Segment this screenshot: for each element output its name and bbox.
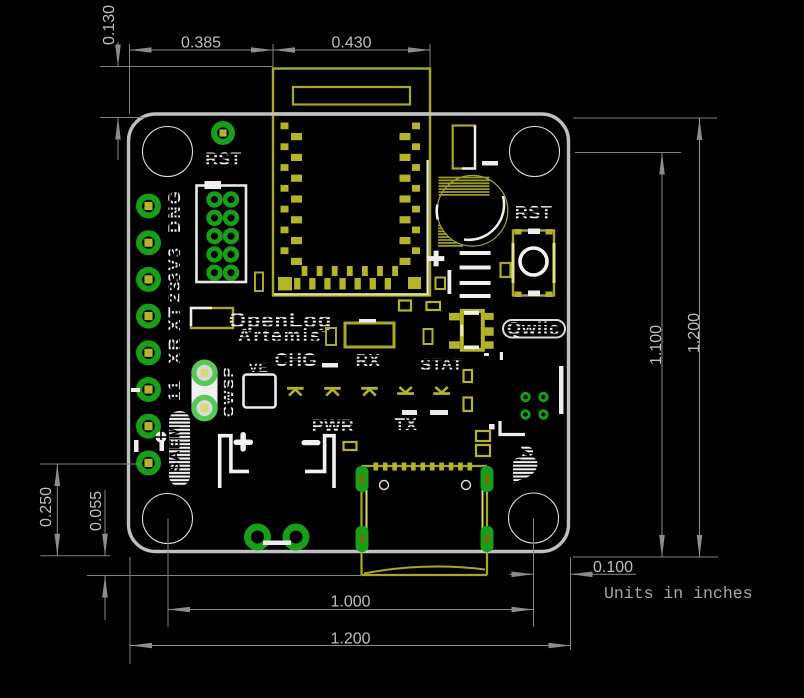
svg-text:Units in inches: Units in inches xyxy=(604,584,753,603)
svg-text:VE: VE xyxy=(249,359,269,375)
svg-text:CWSP: CWSP xyxy=(221,366,238,417)
svg-text:PWR: PWR xyxy=(312,416,354,436)
svg-text:XT: XT xyxy=(165,305,184,331)
svg-text:SAEM: SAEM xyxy=(167,425,184,472)
svg-text:0.250: 0.250 xyxy=(38,487,55,527)
svg-text:1.100: 1.100 xyxy=(648,325,665,365)
svg-text:XR: XR xyxy=(165,336,184,364)
svg-text:1.000: 1.000 xyxy=(330,594,370,611)
svg-text:11: 11 xyxy=(165,379,184,401)
svg-text:0.130: 0.130 xyxy=(101,5,118,45)
svg-text:DNG: DNG xyxy=(165,189,184,233)
svg-text:0.385: 0.385 xyxy=(181,35,221,52)
svg-text:0.100: 0.100 xyxy=(593,559,633,576)
svg-text:RX: RX xyxy=(356,351,381,370)
svg-text:TX: TX xyxy=(395,415,418,434)
svg-text:1.200: 1.200 xyxy=(686,313,703,353)
svg-text:Qwiic: Qwiic xyxy=(507,319,560,339)
svg-text:CHG: CHG xyxy=(275,349,318,370)
svg-text:23: 23 xyxy=(165,280,184,303)
svg-text:3V3: 3V3 xyxy=(165,246,184,282)
svg-text:0.055: 0.055 xyxy=(88,491,105,531)
svg-text:1.200: 1.200 xyxy=(330,631,370,648)
svg-text:0.430: 0.430 xyxy=(331,35,371,52)
svg-text:RST: RST xyxy=(515,203,553,223)
svg-text:STAT: STAT xyxy=(420,356,463,374)
svg-text:RST: RST xyxy=(205,149,242,169)
svg-text:Artemis: Artemis xyxy=(238,326,323,347)
